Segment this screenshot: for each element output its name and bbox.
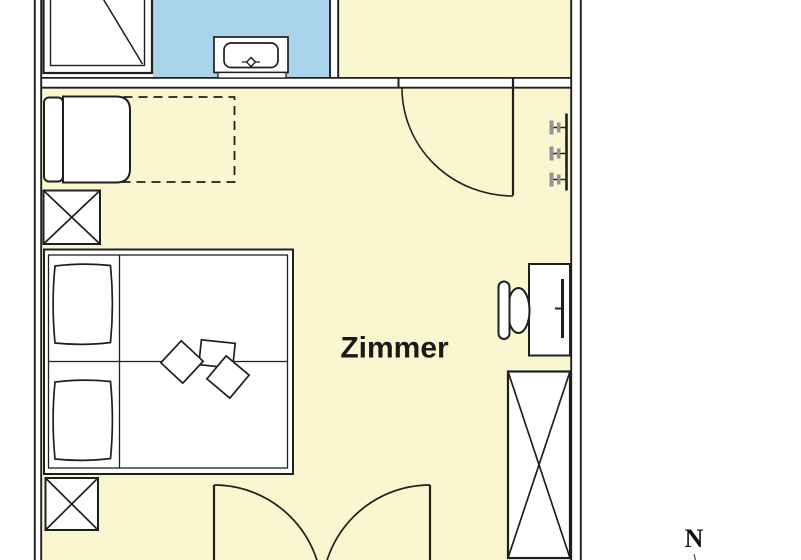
room-label: Zimmer xyxy=(340,332,449,365)
pillow-upper xyxy=(53,264,112,344)
washbasin-pedestal xyxy=(218,73,286,79)
wall-right xyxy=(571,0,582,560)
wall-left xyxy=(34,0,41,560)
pillow-lower xyxy=(53,380,112,460)
double-bed xyxy=(44,250,293,475)
sofa-bed-headrest xyxy=(44,98,63,182)
floor-plan: Zimmer N xyxy=(0,0,801,560)
wardrobe xyxy=(508,372,570,559)
shower xyxy=(44,0,153,73)
wall-bath-divider xyxy=(330,0,339,79)
chair-seat xyxy=(508,288,530,333)
wall-top xyxy=(36,77,581,88)
chair-backrest xyxy=(499,282,510,340)
shower-tray xyxy=(44,0,153,73)
sofa-bed-body xyxy=(63,97,130,183)
hall-floor xyxy=(339,0,571,78)
floor-plan-drawing: Zimmer N xyxy=(0,0,801,560)
washbasin xyxy=(214,37,288,78)
nightstand-upper xyxy=(44,191,101,245)
nightstand-lower xyxy=(46,478,99,530)
compass-north-label: N xyxy=(685,524,704,553)
desk xyxy=(529,264,570,356)
